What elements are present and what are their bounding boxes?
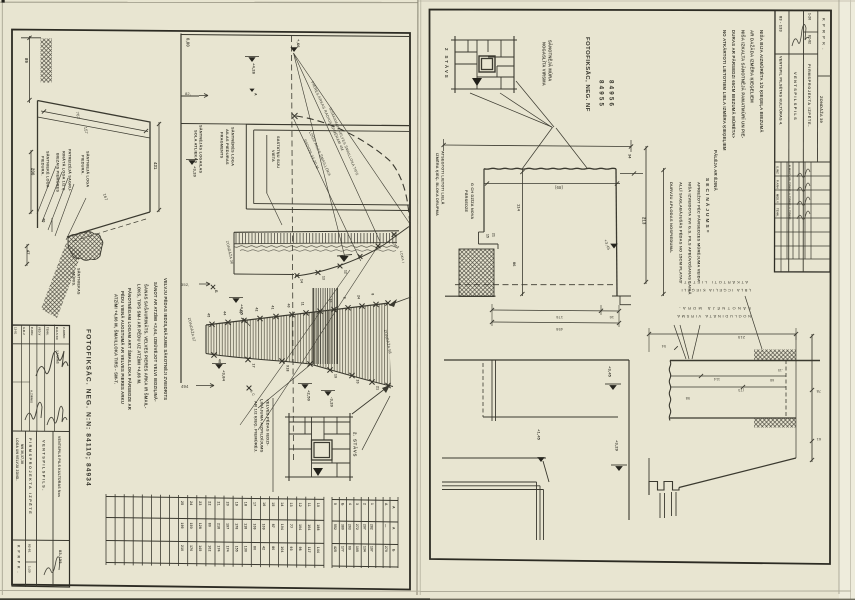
svg-text:82-81: 82-81 [28,544,32,553]
svg-text:SĀNOTNĒJĀ MŪRA: SĀNOTNĒJĀ MŪRA [548,40,553,81]
svg-text:16: 16 [262,502,266,506]
svg-text:104: 104 [280,546,284,552]
svg-text:3: 3 [355,503,359,505]
svg-text:FOTOFIKSĀC, NEG. NF: FOTOFIKSĀC, NEG. NF [584,37,591,112]
svg-text:82,: 82, [185,91,191,96]
svg-text:21: 21 [492,233,496,237]
svg-text:9: 9 [343,297,347,299]
svg-text:TEHN.: TEHN. [776,208,780,217]
svg-text:PĀLĒJA AR ĒJINĀ: PĀLĒJA AR ĒJINĀ [713,150,718,191]
svg-text:104: 104 [280,524,284,530]
svg-text:4: 4 [348,503,352,505]
svg-text:40: 40 [287,304,291,308]
svg-text:10: 10 [329,299,333,303]
svg-text:+4,28: +4,28 [252,63,257,75]
svg-text:20: 20 [356,380,360,384]
svg-text:PIRMSPROJEKTA IZPĒTE-: PIRMSPROJEKTA IZPĒTE- [807,64,811,127]
svg-text:130: 130 [244,546,248,552]
svg-text:8: 8 [371,293,375,295]
svg-text:SĀNTNIEKĒ LOGA: SĀNTNIEKĒ LOGA [46,151,50,188]
svg-text:41: 41 [271,306,275,310]
svg-text:SĀNTNIEKAS: SĀNTNIEKAS [77,268,81,295]
svg-text:Б: Б [214,290,218,293]
svg-text:NOGLUDINĀTA VIRSMA: NOGLUDINĀTA VIRSMA [676,314,751,319]
svg-text:12: 12 [344,270,348,274]
svg-text:213: 213 [641,217,646,225]
svg-text:ŠANAS SAŠAURINĀTS. VELVES PIER: ŠANAS SAŠAURINĀTS. VELVES PIERES ARKA IR… [143,284,148,409]
svg-text:FOTOFIKSĀC. NEG. N:N: 84110; 8: FOTOFIKSĀC. NEG. N:N: 84110; 84934 [85,329,93,487]
svg-text:A.ZIRNIS: A.ZIRNIS [788,179,792,192]
svg-text:+1,45: +1,45 [537,429,542,441]
svg-text:109: 109 [253,524,257,530]
svg-text:ALLĪ SAGLABĀJUŠĀS PĒDAS NO 15C: ALLĪ SAGLABĀJUŠĀS PĒDAS NO 15CM PLATAS [678,182,683,283]
svg-text:NIŠA IZVEIDOTA XVI G.S. PILS A: NIŠA IZVEIDOTA XVI G.S. PILS APBŪVOŠANAS… [688,182,693,295]
svg-text:14: 14 [280,502,284,506]
svg-text:282: 282 [370,524,374,530]
svg-text:45: 45 [207,313,211,317]
svg-text:78: 78 [816,389,821,393]
svg-text:144: 144 [316,547,320,553]
svg-text:LOKS, TIPS SM-I AR PĒDU UZ ATZ: LOKS, TIPS SM-I AR PĒDU UZ ATZĪMI +4,66 … [136,284,141,385]
svg-text:200: 200 [30,168,35,176]
svg-text:PĀRSEDZE: PĀRSEDZE [464,190,468,213]
svg-text:87: 87 [271,524,275,528]
svg-text:89: 89 [24,58,29,64]
svg-text:263: 263 [348,524,352,530]
svg-text:13: 13 [322,276,326,280]
svg-text:A.ZIRNIS: A.ZIRNIS [788,207,792,220]
svg-text:425: 425 [333,546,337,552]
svg-text:114: 114 [517,204,522,212]
svg-text:13: 13 [289,503,293,507]
svg-text:145: 145 [198,545,202,551]
svg-text:+3,84: +3,84 [222,370,227,382]
svg-text:PIRMSPROJEKTA IZPĒTE: PIRMSPROJEKTA IZPĒTE [28,438,32,515]
svg-text:17: 17 [252,364,256,368]
svg-text:+2,50: +2,50 [307,390,312,402]
svg-text:2 STĀVS: 2 STĀVS [444,48,449,80]
svg-text:24: 24 [357,295,361,299]
svg-text:12-81: 12-81 [13,327,16,335]
svg-text:RINĀTĀ LOGA 1/2 Ķ.: RINĀTĀ LOGA 1/2 Ķ. [62,151,66,192]
svg-text:98: 98 [298,547,302,551]
svg-text:218: 218 [216,523,220,529]
svg-text:AR 1/2 ĶIEĢ. PIEMŪRĒJ.: AR 1/2 ĶIEĢ. PIEMŪRĒJ. [254,401,259,453]
svg-text:150: 150 [189,523,193,529]
svg-text:2. STĀVS: 2. STĀVS [352,432,357,457]
svg-text:IZMĒRA ĶIEĢ. BLOKA DRUPMA: IZMĒRA ĶIEĢ. BLOKA DRUPMA [435,153,439,216]
svg-text:ATZĪMI +4,66 M, ŠMAILLOKA TIRS: ATZĪMI +4,66 M, ŠMAILLOKA TIRS - SM-T. [113,294,118,384]
svg-text:44: 44 [223,311,227,315]
svg-text:A: A [254,93,258,96]
svg-text:80: 80 [271,546,275,550]
svg-text:552: 552 [333,524,337,530]
svg-text:MŪRIS.: MŪRIS. [72,272,76,287]
svg-text:-3,20: -3,20 [330,397,335,408]
svg-text:46: 46 [218,359,222,363]
svg-text:SĀNOT AR ATZĪMI +3,64, IZBŪVĒJ: SĀNOT AR ATZĪMI +3,64, IZBŪVĒJOT VELVI I… [153,282,158,402]
svg-text:174: 174 [216,546,220,552]
svg-text:DURVJU APLODAS NOSPIEDUMA.: DURVJU APLODAS NOSPIEDUMA. [669,182,674,253]
svg-text:210: 210 [180,545,184,551]
svg-text:109: 109 [262,524,266,530]
svg-text:19: 19 [334,374,338,378]
svg-text:93: 93 [289,547,293,551]
svg-text:84956: 84956 [608,80,615,108]
svg-text:16: 16 [609,315,614,319]
svg-text:270: 270 [384,546,388,552]
svg-text:DURAS AR PĀRSEDZI 65CM BIEZUMĀ: DURAS AR PĀRSEDZI 65CM BIEZUMĀ MŪRĒTA> [731,30,736,139]
svg-text:G.INZ: G.INZ [776,166,780,174]
svg-text:1-20: 1-20 [808,13,812,20]
svg-text:42: 42 [262,546,266,550]
svg-text:174: 174 [225,546,229,552]
svg-text:60: 60 [253,546,257,550]
svg-text:PĀNOTNĒGAM LOGAM ART ŠMAILLOKA: PĀNOTNĒGAM LOGAM ART ŠMAILLOKA PĀRSEDZE … [127,288,132,410]
svg-text:104: 104 [307,524,311,530]
svg-text:176: 176 [556,315,563,319]
svg-text:15: 15 [486,234,490,238]
svg-text:APRIEŽOT PĒC PĀRSEDZES MŪRĒJUM: APRIEŽOT PĒC PĀRSEDZES MŪRĒJUMA VEIDA [697,182,702,282]
svg-text:114: 114 [714,377,720,381]
svg-text:82-82: 82-82 [808,35,812,44]
svg-text:197: 197 [225,523,229,529]
svg-text:170: 170 [189,545,193,551]
svg-text:24: 24 [189,501,193,505]
svg-text:VIETA: VIETA [271,150,275,162]
svg-text:21: 21 [216,502,220,506]
svg-text:117: 117 [307,547,311,553]
svg-text:134: 134 [362,546,366,552]
svg-text:155: 155 [235,546,239,552]
svg-text:BIEZAIS PIEMŪRES: BIEZAIS PIEMŪRES [56,153,60,192]
svg-text:P.ARH: P.ARH [776,180,780,189]
svg-text:N.MIKELIS: N.MIKELIS [788,165,792,180]
svg-text:A: A [392,527,396,530]
svg-text:177: 177 [340,546,344,552]
svg-text:494: 494 [181,384,189,389]
svg-text:K P R P K .: K P R P K . [822,18,826,51]
svg-text:V E N T S P I L S P I L S .: V E N T S P I L S P I L S . [42,440,47,491]
svg-text:PĒDU VIENĀ AUGSTUMĀ AR VELVES: PĒDU VIENĀ AUGSTUMĀ AR VELVES PIERES ARK… [120,291,125,404]
svg-text:102: 102 [207,545,211,551]
svg-text:PIEDURA.: PIEDURA. [41,156,45,176]
svg-text:TEHN.: TEHN. [46,327,49,336]
svg-text:178: 178 [235,523,239,529]
svg-text:SĀNTNIEJĀ LOGA: SĀNTNIEJĀ LOGA [86,151,90,187]
svg-text:NIŠA IZKALTA SĀNOTNĒJĀ PAMATMŪ: NIŠA IZKALTA SĀNOTNĒJĀ PAMATMŪRĪ UN PIE- [740,30,745,139]
svg-text:VENTSPILS PILS KULTŪRAS Nos: VENTSPILS PILS KULTŪRAS Nos [57,436,61,497]
svg-text:84955: 84955 [598,80,605,108]
svg-text:A: A [384,503,388,506]
svg-text:20: 20 [225,502,229,506]
svg-text:11: 11 [307,503,311,507]
svg-text:0,00: 0,00 [185,38,190,47]
svg-text:297: 297 [362,524,366,530]
svg-text:SĀNTNĒRĒS LOGA: SĀNTNĒRĒS LOGA [231,127,236,166]
svg-text:188: 188 [316,524,320,530]
svg-text:G CH DZĪZA NOVA: G CH DZĪZA NOVA [470,183,474,219]
svg-text:+,66: +,66 [296,39,301,48]
svg-text:19: 19 [235,502,239,506]
svg-text:68: 68 [770,378,774,382]
svg-text:352,: 352, [181,282,190,287]
svg-text:+3,45: +3,45 [608,366,613,378]
svg-text:A: A [392,506,396,509]
svg-text:431: 431 [153,162,158,170]
svg-text:NIŠA BIJA AIZMŪRĒTA 1/2 ĶIEĢEĻ: NIŠA BIJA AIZMŪRĒTA 1/2 ĶIEĢEĻA BIEZUMĀ [759,30,764,133]
svg-text:K P R P K .: K P R P K . [17,545,21,573]
svg-text:ATKĀRTOTI LIETOTI: ATKĀRTOTI LIETOTI [679,280,748,285]
svg-text:MALS NO: MALS NO [55,327,58,340]
svg-text:+4,05: +4,05 [240,304,245,316]
svg-text:V E N T S P I L S P I L S: V E N T S P I L S P I L S [793,72,798,120]
svg-text:1:20: 1:20 [28,566,32,573]
svg-text:G.M.Z: G.M.Z [22,327,25,335]
svg-text:VENTSPIL PILSĒTAS KULTŪRAS 4.: VENTSPIL PILSĒTAS KULTŪRAS 4. [779,56,783,126]
svg-text:77: 77 [289,524,293,528]
svg-text:(89): (89) [554,185,563,190]
svg-text:42: 42 [255,308,259,312]
svg-text:18: 18 [244,502,248,506]
svg-text:215: 215 [737,335,745,340]
svg-text:+3,29: +3,29 [615,440,620,452]
svg-text:PATREIZĒJĀ SAGRU-: PATREIZĒJĀ SAGRU- [68,149,72,192]
svg-text:69: 69 [348,546,352,550]
svg-text:V.ARBID: V.ARBID [62,327,65,338]
svg-text:498: 498 [556,327,563,331]
svg-text:SĀNOTNĒJĀ MŪRA-: SĀNOTNĒJĀ MŪRA- [677,306,751,311]
svg-text:VELVJU PĒDAS IEDZIĻINĀJUMS SĀK: VELVJU PĒDAS IEDZIĻINĀJUMS SĀKOTNĒJI ZVE… [163,278,168,400]
svg-text:83 - 133: 83 - 133 [779,16,784,33]
svg-text:2: 2 [362,503,366,505]
svg-text:195: 195 [180,523,184,529]
svg-text:54: 54 [662,344,666,348]
svg-text:MED.V: MED.V [776,194,780,203]
svg-text:61: 61 [816,437,821,441]
svg-text:25: 25 [180,501,184,505]
svg-text:15: 15 [271,502,275,506]
svg-text:5: 5 [333,503,337,505]
svg-text:-15: -15 [778,368,783,372]
svg-text:34: 34 [628,154,632,159]
svg-text:VED.V: VED.V [38,327,41,336]
svg-text:ZONDĀŽA 39: ZONDĀŽA 39 [819,96,824,124]
svg-text:S E C I N Ā J U M S =: S E C I N Ā J U M S = [705,178,711,233]
svg-text:P.ARH: P.ARH [30,327,33,335]
svg-text:11: 11 [301,302,305,306]
svg-text:ATSEGTOTI LIETOTI LIELĀ: ATSEGTOTI LIETOTI LIELĀ [441,151,445,205]
svg-text:17: 17 [253,502,257,506]
svg-text:AILAS PIEDURAS: AILAS PIEDURAS [225,129,230,165]
svg-text:FRAGMENTS: FRAGMENTS [220,132,225,159]
svg-text:A.ZIRNIS: A.ZIRNIS [788,193,792,206]
svg-text:PIEDURA.: PIEDURA. [81,155,85,175]
svg-text:10: 10 [316,503,320,507]
svg-text:VELVES PĒDAS IEDZI-: VELVES PĒDAS IEDZI- [266,399,271,446]
svg-text:X18: X18 [286,365,290,372]
svg-text:AR DAŽĀDA IZMĒRA ĶIEĢELIEM: AR DAŽĀDA IZMĒRA ĶIEĢELIEM [750,30,755,103]
svg-text:Б: Б [392,549,396,552]
svg-text:98: 98 [686,396,690,400]
svg-text:22: 22 [207,501,211,505]
svg-text:SASTATŅU SIJU: SASTATŅU SIJU [276,136,280,168]
svg-text:197: 197 [370,546,374,552]
svg-text:A.ZIRNIS: A.ZIRNIS [30,390,34,403]
svg-text:128: 128 [198,523,202,529]
svg-text:118: 118 [244,523,248,529]
svg-text:SOLA ATLIEKAS: SOLA ATLIEKAS [194,130,199,164]
svg-text:12: 12 [298,503,302,507]
svg-text:ĻINĀJUMA AIZPILDĪJUMS: ĻINĀJUMA AIZPILDĪJUMS [260,399,265,453]
svg-text:14: 14 [300,279,304,283]
svg-text:NOGASLĪTA VIRSMA: NOGASLĪTA VIRSMA [542,42,547,86]
svg-text:Б: Б [340,503,344,506]
svg-text:NO ATKĀRTOTI LIETOTIEM LIELA I: NO ATKĀRTOTI LIETOTIEM LIELA IZMĒRA ĶIEĢ… [722,30,727,151]
svg-text:+3,20: +3,20 [193,166,198,178]
svg-text:NN 36,37,38: NN 36,37,38 [20,444,24,464]
svg-text:80: 80 [207,523,211,527]
svg-text:105: 105 [355,546,359,552]
svg-text:272: 272 [355,524,359,530]
svg-text:LOGA UN VELVJU ZOND-: LOGA UN VELVJU ZOND- [15,438,19,481]
svg-text:104: 104 [298,524,302,530]
svg-text:ĻBĻA ICĢEĻIA ĶIEĢEĻI: ĻBĻA ICĢEĻIA ĶIEĢEĻI [680,288,751,293]
svg-text:1: 1 [370,503,374,505]
svg-text:86: 86 [512,262,516,267]
svg-text:380: 380 [340,524,344,530]
svg-text:21: 21 [376,386,380,390]
svg-text:23: 23 [198,501,202,505]
